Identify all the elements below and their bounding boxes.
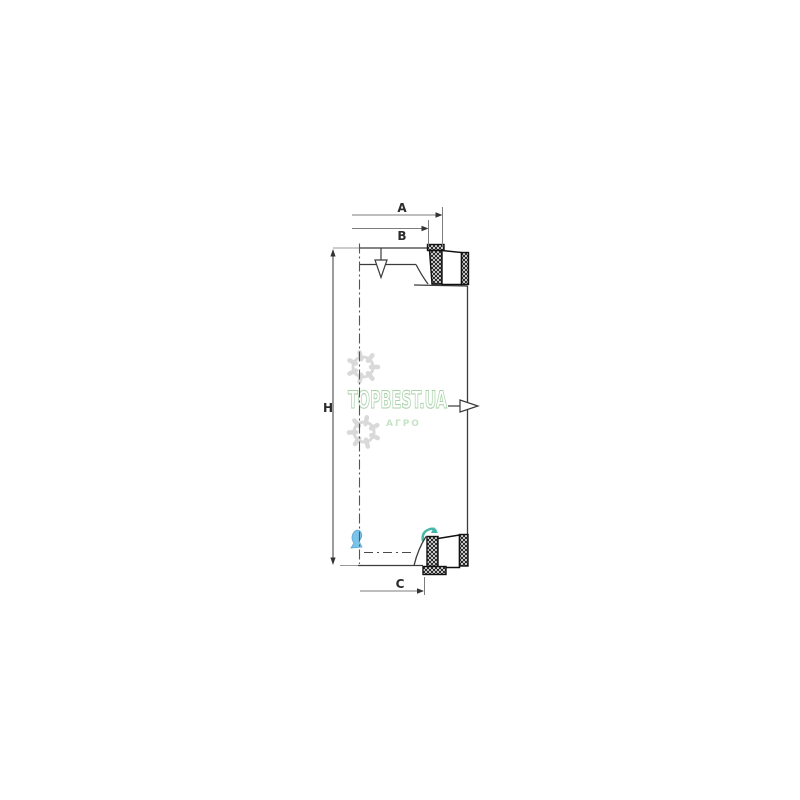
dimension-A-label: A: [397, 201, 407, 215]
top-seal-left-strip: [430, 251, 443, 285]
top-end-cap-seal: [428, 245, 469, 285]
dimension-C-arrow: [417, 588, 424, 593]
bottom-cap-body-block: [438, 535, 460, 568]
filter-cross-section-diagram: TOPBEST.UA АГРО: [0, 0, 800, 800]
air-inlet-funnel-arrow-icon: [375, 249, 387, 278]
air-outlet-right-arrow-icon: [448, 400, 478, 412]
dimension-C: C: [360, 577, 425, 595]
bottom-cap-fillet-curve: [414, 537, 426, 566]
top-seal-flange-block: [428, 245, 445, 251]
dimension-B: B: [352, 220, 429, 246]
top-cap-body-block: [442, 251, 462, 285]
technical-drawing-page: TOPBEST.UA АГРО: [0, 0, 800, 800]
dimension-H-top-arrow: [330, 249, 335, 257]
bottom-end-cap-seal: [423, 535, 468, 575]
gear-icon: [346, 413, 384, 451]
dimension-H-label: H: [323, 401, 333, 415]
watermark-brand-text: TOPBEST.UA: [348, 386, 447, 414]
watermark-subtitle-text: АГРО: [386, 419, 421, 429]
dimension-C-label: C: [396, 577, 405, 591]
watermark-layer: TOPBEST.UA АГРО: [346, 352, 448, 548]
bottom-seal-left-strip: [427, 537, 438, 567]
top-seal-right-strip: [462, 253, 469, 285]
top-cap-fillet-curve: [416, 265, 428, 285]
gear-icon: [350, 352, 379, 381]
bottom-seal-right-strip: [460, 535, 469, 567]
bottom-seal-flange-block: [423, 567, 446, 575]
watermark-blue-arrow-icon: [351, 530, 362, 548]
dimension-H: H: [323, 249, 336, 565]
dimension-B-label: B: [397, 229, 406, 243]
dimension-B-arrow: [422, 226, 429, 231]
dimension-A-arrow: [436, 212, 443, 217]
dimension-H-bottom-arrow: [330, 558, 335, 566]
